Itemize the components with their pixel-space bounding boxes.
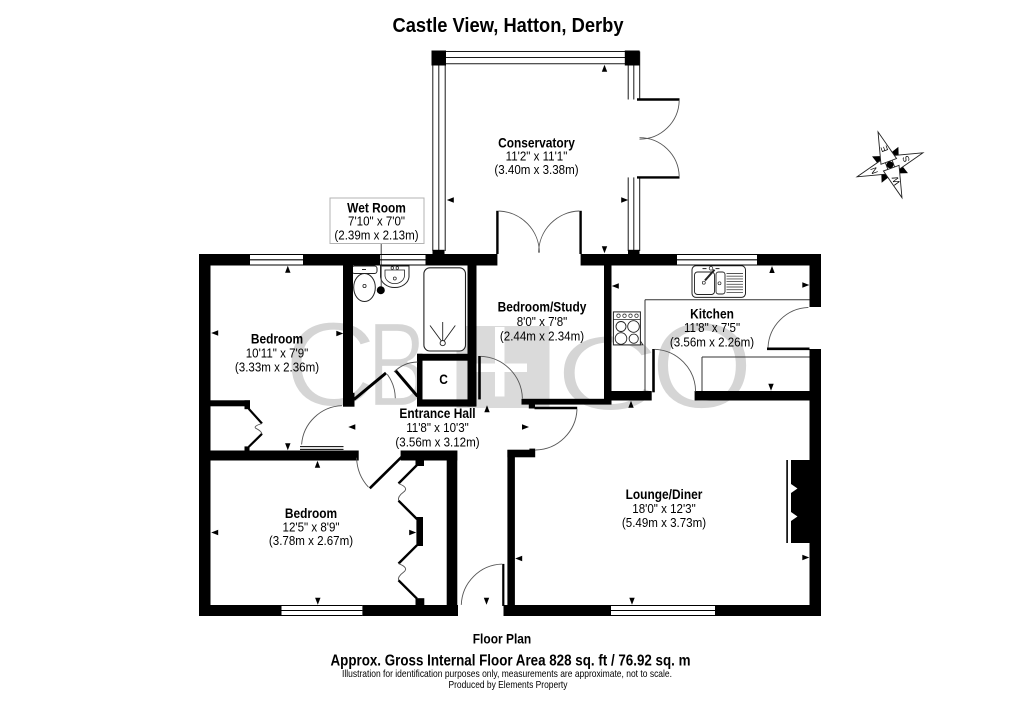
- svg-text:(3.33m x 2.36m): (3.33m x 2.36m): [235, 360, 319, 375]
- svg-text:Approx. Gross Internal Floor A: Approx. Gross Internal Floor Area 828 sq…: [331, 653, 691, 670]
- svg-text:C: C: [439, 372, 448, 387]
- svg-text:(2.44m x 2.34m): (2.44m x 2.34m): [500, 329, 584, 344]
- svg-text:(3.56m x 3.12m): (3.56m x 3.12m): [395, 435, 479, 450]
- svg-text:Floor Plan: Floor Plan: [473, 632, 532, 647]
- svg-text:(5.49m x 3.73m): (5.49m x 3.73m): [622, 516, 706, 531]
- svg-text:10'11" x 7'9": 10'11" x 7'9": [246, 346, 309, 361]
- svg-text:11'8" x 7'5": 11'8" x 7'5": [684, 320, 740, 335]
- svg-text:Illustration for identificatio: Illustration for identification purposes…: [342, 668, 672, 680]
- svg-text:11'8" x 10'3": 11'8" x 10'3": [406, 420, 469, 435]
- svg-text:(3.40m x 3.38m): (3.40m x 3.38m): [494, 162, 578, 177]
- svg-text:Bedroom/Study: Bedroom/Study: [498, 300, 587, 315]
- svg-text:(2.39m x 2.13m): (2.39m x 2.13m): [334, 228, 418, 243]
- svg-text:(3.56m x 2.26m): (3.56m x 2.26m): [670, 335, 754, 350]
- svg-text:7'10" x 7'0": 7'10" x 7'0": [348, 214, 405, 229]
- svg-text:Lounge/Diner: Lounge/Diner: [626, 488, 703, 503]
- svg-text:Produced by Elements Property: Produced by Elements Property: [449, 680, 569, 691]
- svg-text:(3.78m x 2.67m): (3.78m x 2.67m): [269, 533, 353, 548]
- svg-text:Castle View, Hatton, Derby: Castle View, Hatton, Derby: [393, 15, 625, 37]
- svg-text:18'0" x 12'3": 18'0" x 12'3": [632, 502, 695, 517]
- svg-text:Bedroom: Bedroom: [251, 332, 303, 347]
- svg-text:Entrance Hall: Entrance Hall: [399, 406, 475, 421]
- svg-text:8'0" x 7'8": 8'0" x 7'8": [517, 314, 568, 329]
